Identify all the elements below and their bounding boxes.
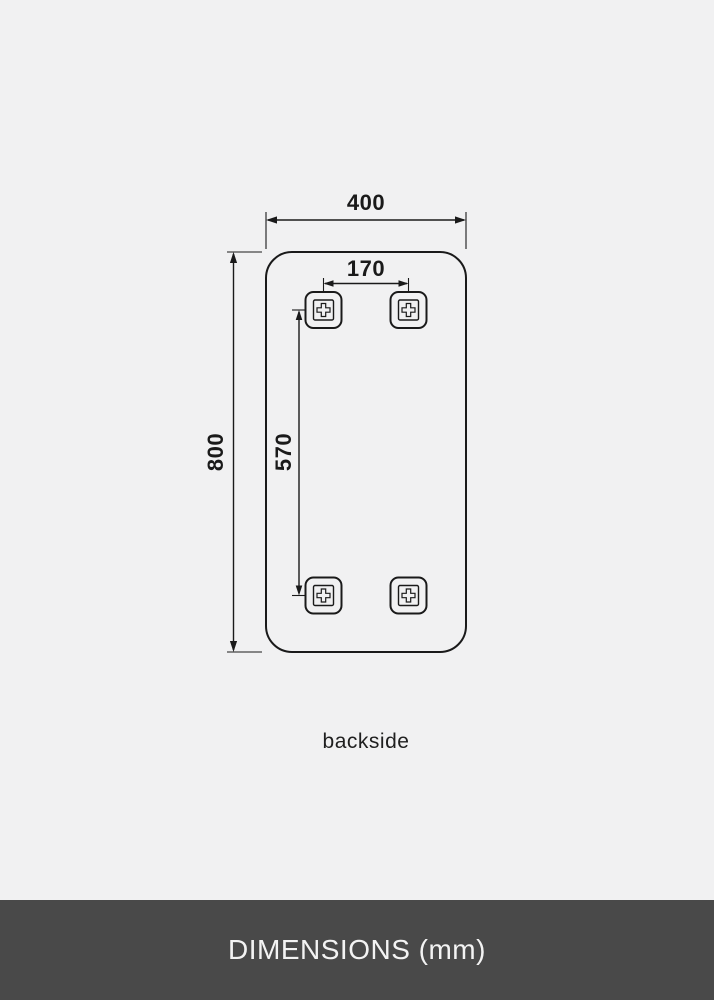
arrow-right-icon xyxy=(399,280,409,287)
mounting-bracket-top-right-icon xyxy=(391,292,427,328)
product-dimension-page: 400 800 170 570 backside DIMENSIONS (mm) xyxy=(0,0,714,1000)
mounting-bracket-bottom-left-icon xyxy=(306,578,342,614)
arrow-left-icon xyxy=(324,280,334,287)
bracket-spacing-horizontal-label: 170 xyxy=(347,256,385,282)
arrow-up-icon xyxy=(296,310,303,320)
arrow-right-icon xyxy=(455,216,466,223)
arrow-down-icon xyxy=(230,641,237,652)
width-dimension-label: 400 xyxy=(347,190,385,216)
mounting-bracket-top-left-icon xyxy=(306,292,342,328)
height-dimension-label: 800 xyxy=(203,433,229,471)
footer-title: DIMENSIONS (mm) xyxy=(228,934,486,966)
width-dimension-lines xyxy=(266,212,466,249)
arrow-down-icon xyxy=(296,586,303,596)
bracket-spacing-vertical-label: 570 xyxy=(271,433,297,471)
mounting-bracket-bottom-right-icon xyxy=(391,578,427,614)
dimension-drawing: 400 800 170 570 backside xyxy=(0,0,714,900)
arrow-up-icon xyxy=(230,252,237,263)
dimension-drawing-svg xyxy=(0,0,714,900)
footer-bar: DIMENSIONS (mm) xyxy=(0,900,714,1000)
backside-caption: backside xyxy=(323,730,410,754)
arrow-left-icon xyxy=(266,216,277,223)
height-dimension-lines xyxy=(227,252,262,652)
